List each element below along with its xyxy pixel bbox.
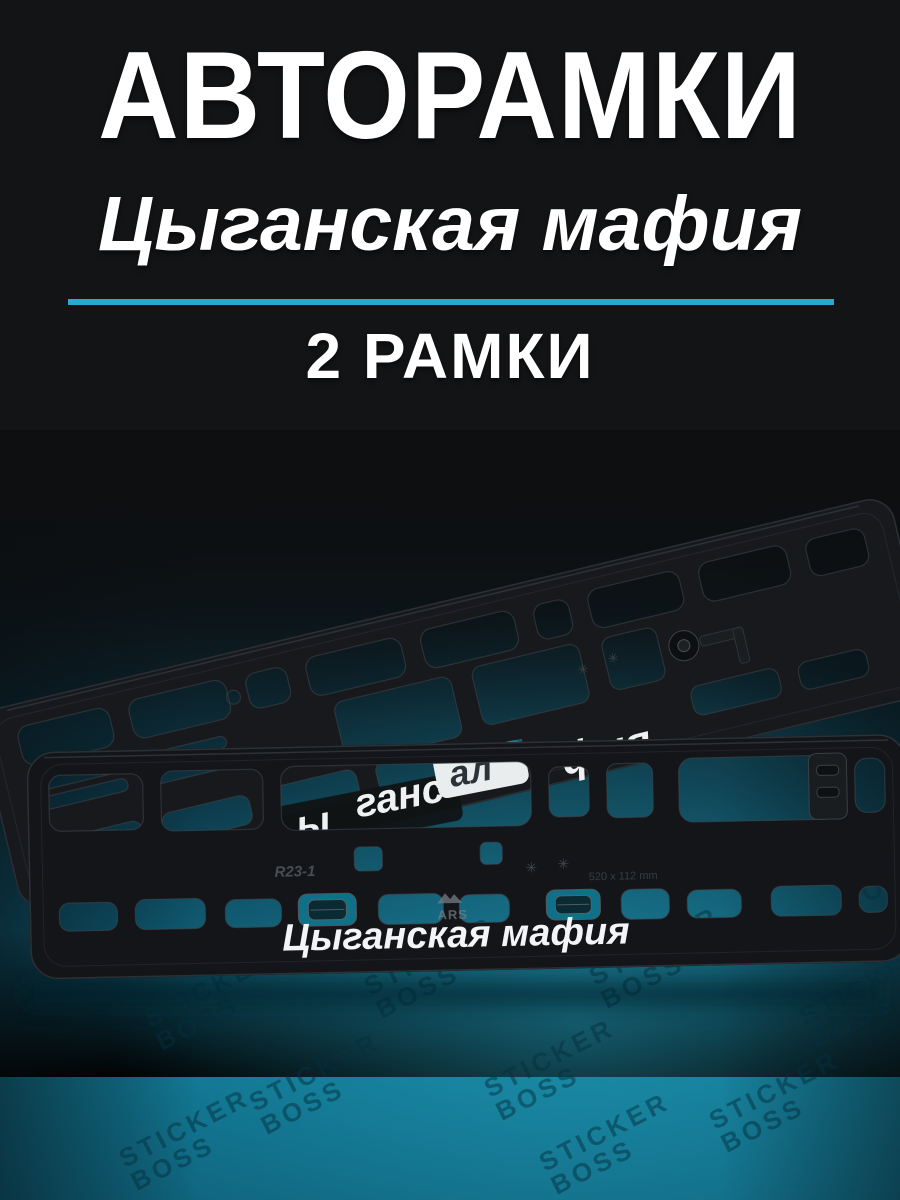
product-photo: STICKERBOSS STICKERBOSS STICKERBOSS STIC… — [0, 430, 900, 1200]
product-subtitle: Цыганская мафия — [0, 186, 900, 263]
screw-slider — [808, 753, 847, 820]
size-mark: 520 x 112 mm — [589, 870, 658, 883]
rosette-icon: ✳ — [557, 856, 569, 872]
mold-mark-front: R23-1 — [274, 863, 315, 881]
plate-frame-front: ARS R23-1 ✳ ✳ 520 x 112 mm Цыганская маф… — [26, 734, 900, 980]
frame-caption: Цыганская мафия — [282, 910, 630, 959]
accent-divider — [68, 299, 834, 305]
quantity-label: 2 РАМКИ — [0, 324, 900, 388]
product-card-header: АВТОРАМКИ Цыганская мафия 2 РАМКИ — [0, 0, 900, 430]
page-title: АВТОРАМКИ — [45, 34, 855, 158]
rosette-icon: ✳ — [525, 859, 537, 875]
frame-shadow — [25, 982, 880, 1006]
